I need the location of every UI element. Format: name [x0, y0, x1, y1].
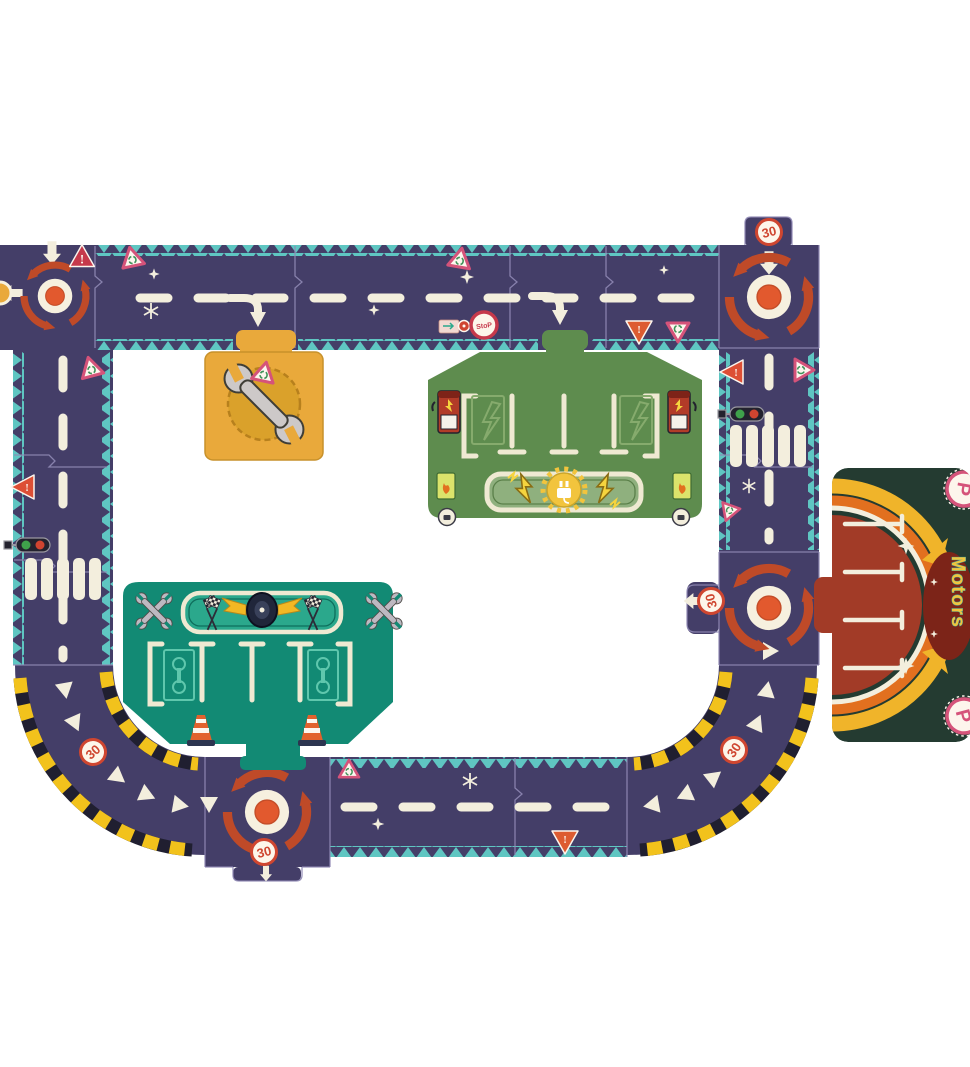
speed-sign-top-right [757, 220, 782, 245]
crosswalk-left [25, 558, 101, 600]
speed-sign-bottom [252, 840, 277, 865]
motors-label: Motors [947, 556, 968, 628]
puzzle-scene: 30 ! ! [0, 0, 970, 1067]
speed-sign-mid-right [699, 589, 724, 614]
motors-parking-piece: Motors [814, 466, 970, 742]
road-puzzle-illustration: 30 ! ! [0, 0, 970, 1067]
crosswalk-right [730, 425, 806, 467]
charging-station [428, 330, 702, 526]
edge-sign [0, 282, 11, 304]
page-background [0, 0, 970, 1067]
